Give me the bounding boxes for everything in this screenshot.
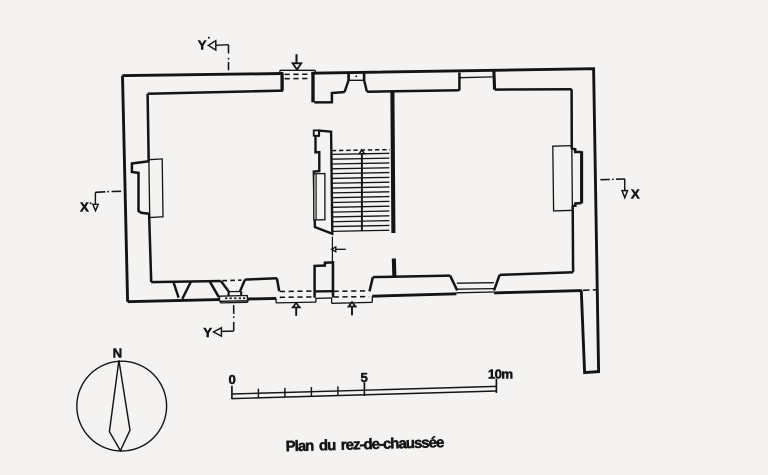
- svg-text:N: N: [113, 346, 123, 361]
- svg-text:Y: Y: [198, 38, 207, 53]
- svg-text:10m: 10m: [488, 367, 513, 382]
- svg-text:X: X: [80, 200, 89, 215]
- svg-text:5: 5: [361, 370, 368, 385]
- svg-text:X: X: [631, 187, 640, 202]
- svg-text:Y: Y: [203, 325, 212, 340]
- svg-text:0: 0: [229, 372, 236, 387]
- svg-text:Plan du rez-de-chaussée: Plan du rez-de-chaussée: [285, 434, 444, 455]
